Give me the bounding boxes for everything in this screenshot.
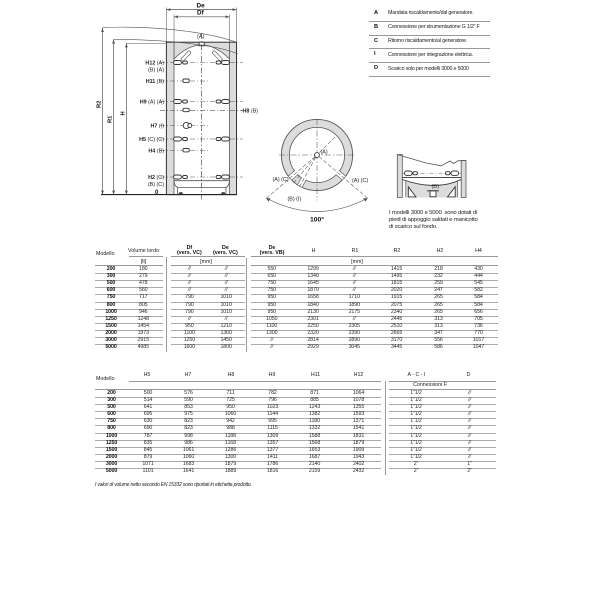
svg-text:H4 (B): H4 (B) bbox=[148, 148, 164, 154]
svg-text:(D): (D) bbox=[432, 184, 440, 190]
svg-text:H5 (C) (C): H5 (C) (C) bbox=[139, 137, 164, 143]
svg-text:H9 (A) (A): H9 (A) (A) bbox=[140, 99, 164, 105]
svg-text:(B) (C): (B) (C) bbox=[148, 182, 164, 188]
svg-text:Df: Df bbox=[197, 10, 205, 17]
svg-text:(A) (C): (A) (C) bbox=[352, 178, 368, 184]
svg-text:(B) (A): (B) (A) bbox=[148, 67, 164, 73]
svg-text:(A): (A) bbox=[321, 150, 328, 156]
svg-text:H11 (B): H11 (B) bbox=[146, 79, 164, 85]
svg-text:H: H bbox=[120, 111, 126, 115]
svg-text:(A) (C): (A) (C) bbox=[273, 177, 289, 183]
svg-text:(B) (I): (B) (I) bbox=[288, 197, 302, 203]
svg-text:De: De bbox=[197, 3, 206, 10]
svg-text:(A): (A) bbox=[197, 34, 205, 40]
svg-text:H8 (B): H8 (B) bbox=[243, 108, 259, 114]
svg-text:H12 (A): H12 (A) bbox=[145, 60, 164, 66]
svg-text:R2: R2 bbox=[97, 101, 103, 108]
svg-text:100°: 100° bbox=[310, 216, 324, 224]
svg-text:H2 (C): H2 (C) bbox=[148, 175, 164, 181]
svg-text:H7 (I): H7 (I) bbox=[151, 123, 165, 129]
svg-text:R1: R1 bbox=[108, 115, 114, 123]
